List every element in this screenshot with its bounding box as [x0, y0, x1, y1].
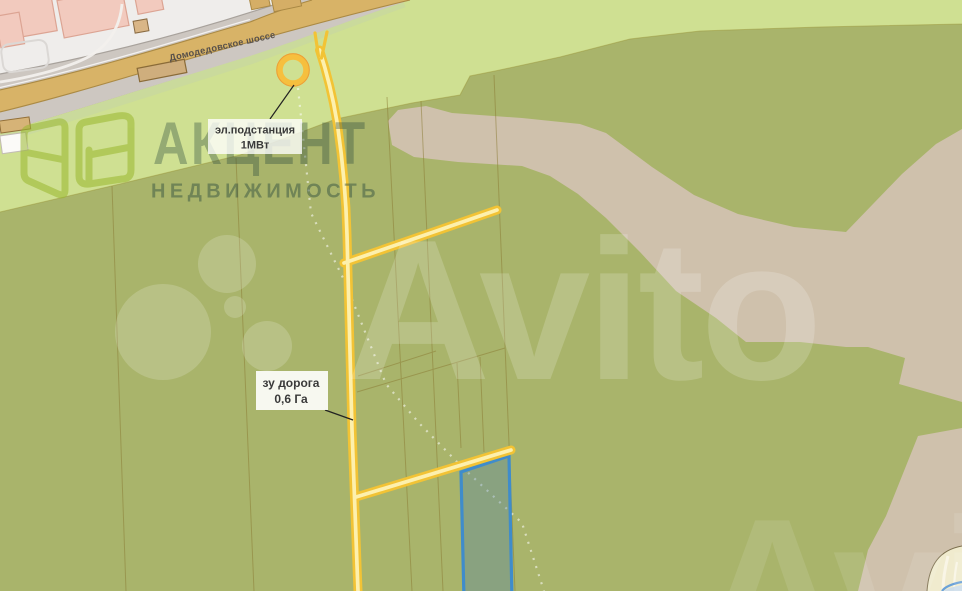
svg-text:зу дорога: зу дорога — [263, 376, 320, 390]
svg-text:1МВт: 1МВт — [241, 140, 270, 152]
svg-text:эл.подстанция: эл.подстанция — [215, 125, 295, 137]
svg-text:Avito: Avito — [700, 478, 962, 591]
svg-text:0,6 Га: 0,6 Га — [274, 392, 308, 406]
svg-text:Avito: Avito — [346, 199, 819, 422]
